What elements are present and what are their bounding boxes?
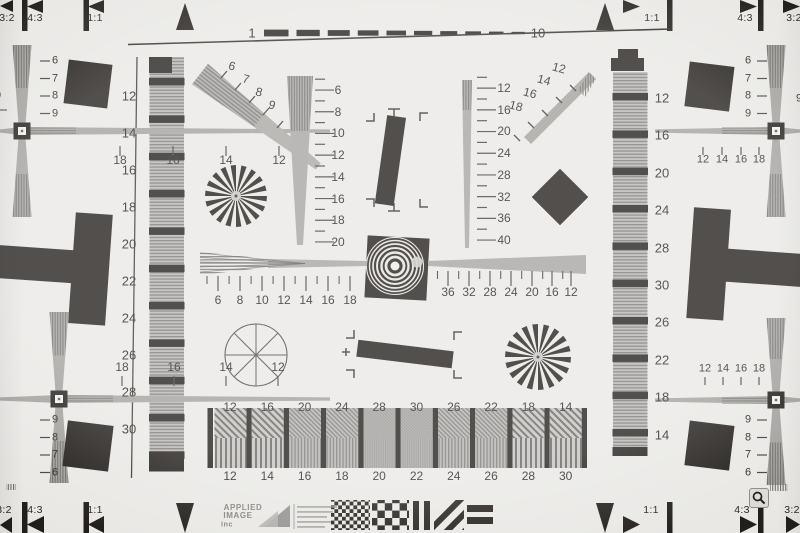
scale-label: 16 (522, 85, 538, 100)
scale-label: 18 (655, 391, 669, 404)
scale-label: 32 (462, 286, 475, 298)
scale-label: 28 (373, 401, 386, 413)
scale-label: 14 (716, 155, 728, 166)
scale-label: 18 (753, 364, 765, 375)
scale-label: 20 (122, 238, 136, 251)
scale-label: 18 (122, 201, 136, 214)
scale-label: 28 (122, 386, 136, 399)
scale-label: 28 (483, 286, 496, 298)
scale-label: 24 (122, 312, 136, 325)
scale-label: 26 (484, 470, 497, 482)
scale-label: 22 (484, 401, 497, 413)
scale-label: 30 (410, 401, 423, 413)
scale-label: 20 (298, 401, 311, 413)
scale-label: 7 (241, 72, 251, 85)
edge-clipped-digit: 9 (0, 91, 1, 102)
scale-label: 22 (655, 353, 669, 366)
scale-label: 30 (122, 423, 136, 436)
scale-label: 7 (745, 73, 751, 84)
dash-scale-start: 1 (248, 27, 255, 40)
scale-label: 14 (331, 171, 344, 183)
ratio-label: 4:3 (734, 505, 750, 516)
scale-label: 8 (52, 91, 58, 102)
scale-label: 9 (52, 415, 58, 426)
ratio-label: 1:1 (643, 505, 659, 516)
scale-label: 16 (545, 286, 558, 298)
scale-label: 12 (122, 90, 136, 103)
scale-label: 8 (745, 432, 751, 443)
scale-label: 16 (261, 401, 274, 413)
scale-label: 12 (699, 364, 711, 375)
ratio-label: 4:3 (737, 13, 753, 24)
scale-label: 26 (447, 401, 460, 413)
scale-label: 6 (227, 59, 237, 72)
scale-label: 12 (697, 155, 709, 166)
scale-label: 6 (52, 467, 58, 478)
scale-label: 9 (745, 108, 751, 119)
scale-label: 12 (655, 92, 669, 105)
scale-label: 14 (122, 127, 136, 140)
ratio-label: 1:1 (644, 13, 660, 24)
logo-line2: IMAGE (223, 512, 252, 520)
scale-label: 12 (223, 470, 236, 482)
scale-label: 9 (52, 108, 58, 119)
scale-label: 36 (497, 212, 510, 224)
chart-labels: 3:2 4:3 1:1 1:1 4:3 3:2 3:2 4:3 1:1 1:1 … (0, 0, 800, 533)
ratio-label: 3:2 (0, 505, 12, 516)
ratio-label: 3:2 (0, 13, 15, 24)
scale-label: 18 (115, 361, 128, 373)
scale-label: 22 (410, 470, 423, 482)
magnifier-icon (751, 490, 767, 506)
scale-label: 16 (166, 154, 179, 166)
scale-label: 16 (298, 470, 311, 482)
scale-label: 8 (52, 432, 58, 443)
scale-label: 14 (655, 428, 669, 441)
scale-label: 12 (497, 82, 510, 94)
scale-label: 20 (373, 470, 386, 482)
scale-label: 18 (113, 154, 126, 166)
scale-label: 20 (525, 286, 538, 298)
scale-label: 26 (655, 316, 669, 329)
scale-label: 12 (277, 294, 290, 306)
scale-label: 24 (504, 286, 517, 298)
scale-label: 36 (441, 286, 454, 298)
edge-clipped-digit: 9 (796, 94, 800, 105)
scale-label: 9 (745, 415, 751, 426)
scale-label: 18 (753, 155, 765, 166)
scale-label: 22 (122, 275, 136, 288)
iso12233-test-chart: 3:2 4:3 1:1 1:1 4:3 3:2 3:2 4:3 1:1 1:1 … (0, 0, 800, 533)
scale-label: 6 (52, 56, 58, 67)
scale-label: 14 (559, 401, 572, 413)
scale-label: 12 (223, 401, 236, 413)
scale-label: 12 (271, 361, 284, 373)
scale-label: 20 (655, 166, 669, 179)
scale-label: 14 (536, 72, 552, 87)
scale-label: 16 (331, 193, 344, 205)
scale-label: 8 (254, 85, 264, 98)
scale-label: 14 (299, 294, 312, 306)
ratio-label: 3:2 (784, 505, 800, 516)
scale-label: 12 (551, 60, 567, 75)
scale-label: 9 (267, 98, 277, 111)
scale-label: 10 (331, 127, 344, 139)
scale-label: 18 (508, 98, 524, 113)
scale-label: 7 (52, 73, 58, 84)
logo-line3: Inc (221, 522, 233, 529)
scale-label: 14 (219, 361, 232, 373)
dash-scale-end: 10 (531, 27, 545, 40)
scale-label: 14 (261, 470, 274, 482)
scale-label: 12 (272, 154, 285, 166)
scale-label: 28 (655, 241, 669, 254)
scale-label: 6 (745, 56, 751, 67)
scale-label: 18 (522, 401, 535, 413)
ratio-label: 3:2 (786, 13, 800, 24)
scale-label: 40 (497, 234, 510, 246)
scale-label: 16 (655, 129, 669, 142)
scale-label: 6 (335, 84, 342, 96)
scale-label: 20 (331, 236, 344, 248)
scale-label: 12 (564, 286, 577, 298)
scale-label: 18 (335, 470, 348, 482)
scale-label: 8 (335, 106, 342, 118)
scale-label: 30 (559, 470, 572, 482)
ratio-label: 4:3 (27, 505, 43, 516)
scale-label: 7 (745, 450, 751, 461)
scale-label: 24 (497, 147, 510, 159)
scale-label: 14 (717, 364, 729, 375)
scale-label: 24 (655, 204, 669, 217)
scale-label: 30 (655, 279, 669, 292)
scale-label: 7 (52, 450, 58, 461)
scale-label: 8 (237, 294, 244, 306)
scale-label: 20 (497, 125, 510, 137)
scale-label: 28 (522, 470, 535, 482)
scale-label: 12 (331, 149, 344, 161)
scale-label: 16 (321, 294, 334, 306)
scale-label: 16 (167, 361, 180, 373)
ratio-label: 1:1 (87, 13, 103, 24)
scale-label: 18 (331, 214, 344, 226)
scale-label: 28 (497, 169, 510, 181)
scale-label: 14 (219, 154, 232, 166)
ratio-label: 1:1 (87, 505, 103, 516)
scale-label: 10 (255, 294, 268, 306)
scale-label: 6 (215, 294, 222, 306)
scale-label: 32 (497, 191, 510, 203)
scale-label: 18 (343, 294, 356, 306)
scale-label: 24 (335, 401, 348, 413)
scale-label: 16 (735, 364, 747, 375)
scale-label: 6 (745, 467, 751, 478)
scale-label: 8 (745, 91, 751, 102)
magnifier-zoom-button[interactable] (749, 488, 769, 508)
ratio-label: 4:3 (27, 13, 43, 24)
scale-label: 24 (447, 470, 460, 482)
scale-label: 16 (735, 155, 747, 166)
